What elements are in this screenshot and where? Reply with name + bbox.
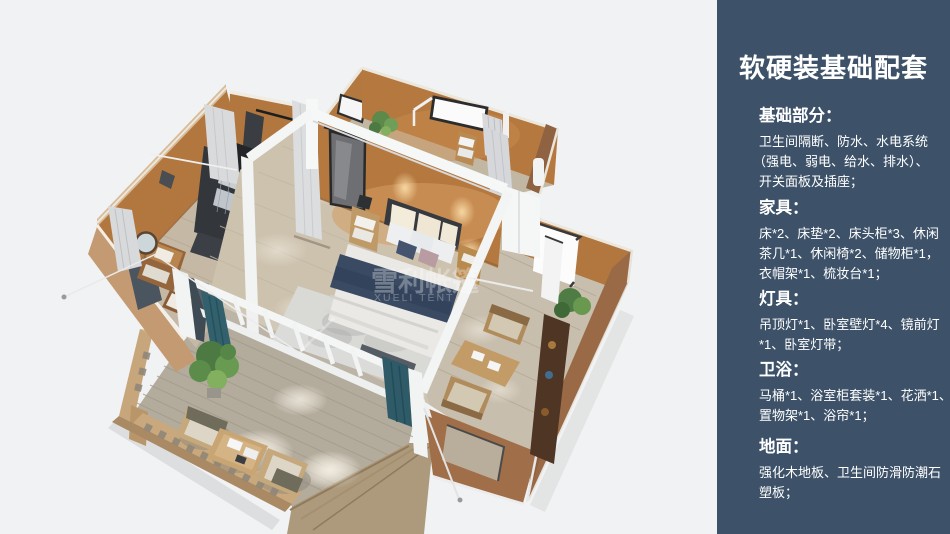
svg-text:XUELI TENT: XUELI TENT xyxy=(374,292,455,304)
